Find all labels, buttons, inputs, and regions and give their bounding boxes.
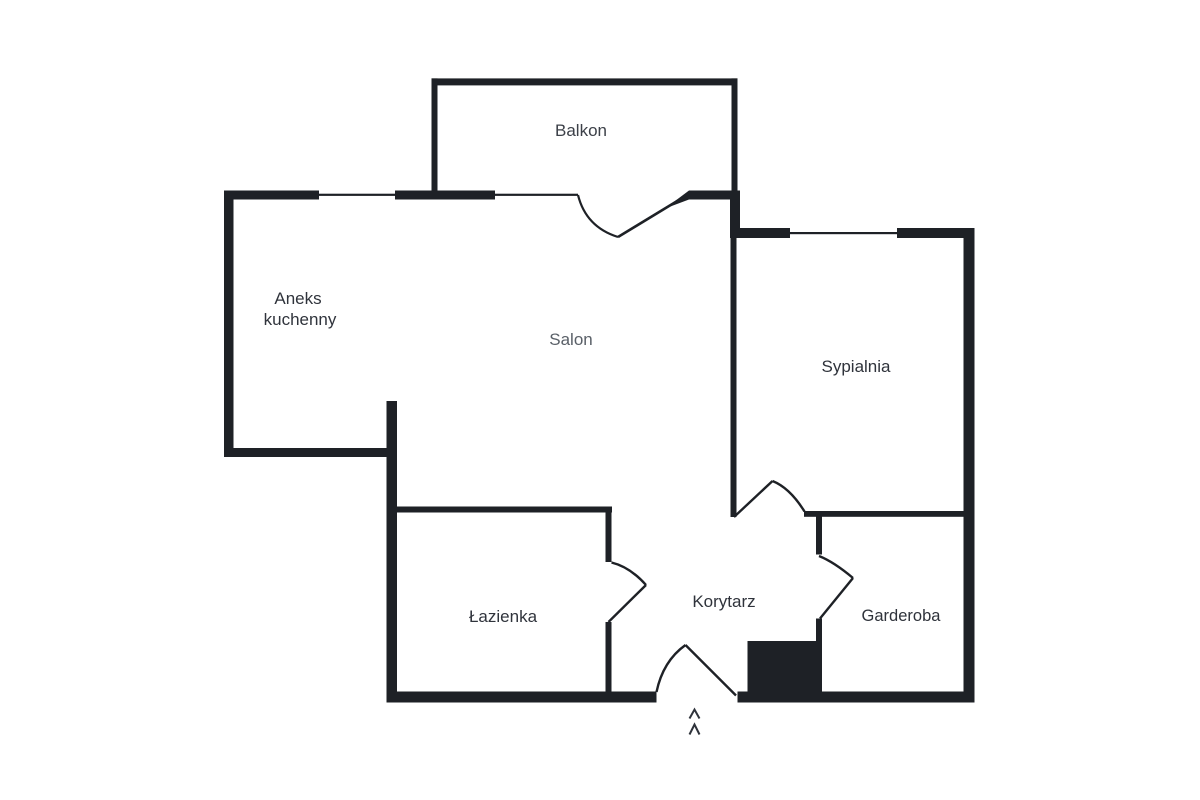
svg-text:Sypialnia: Sypialnia	[822, 357, 892, 376]
svg-text:Aneks: Aneks	[274, 289, 321, 308]
svg-text:Balkon: Balkon	[555, 121, 607, 140]
svg-text:kuchenny: kuchenny	[264, 310, 337, 329]
svg-text:Korytarz: Korytarz	[692, 592, 755, 611]
svg-text:Salon: Salon	[549, 330, 592, 349]
svg-text:Garderoba: Garderoba	[862, 607, 942, 625]
svg-text:Łazienka: Łazienka	[469, 607, 538, 626]
